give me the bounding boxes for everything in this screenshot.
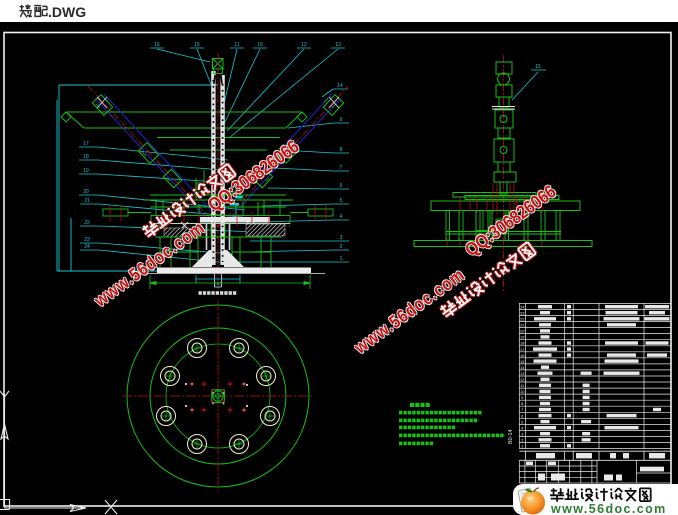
svg-text:17: 17	[520, 347, 525, 352]
svg-text:24: 24	[520, 304, 525, 309]
svg-text:23: 23	[520, 310, 525, 315]
svg-text:20: 20	[520, 329, 525, 334]
svg-text:16: 16	[154, 42, 160, 48]
svg-text:9: 9	[521, 395, 524, 400]
svg-text:6: 6	[340, 183, 343, 189]
svg-text:22: 22	[520, 317, 525, 322]
svg-text:2: 2	[521, 438, 524, 443]
svg-text:3: 3	[340, 235, 343, 241]
svg-text:8: 8	[521, 401, 524, 406]
svg-text:7: 7	[340, 165, 343, 171]
svg-text:18: 18	[83, 154, 89, 160]
svg-text:19: 19	[520, 335, 525, 340]
svg-text:3: 3	[521, 431, 524, 436]
svg-text:23: 23	[84, 237, 90, 243]
svg-text:7: 7	[521, 407, 524, 412]
svg-text:5: 5	[340, 198, 343, 204]
svg-text:420: 420	[214, 281, 222, 286]
svg-text:21: 21	[84, 198, 90, 204]
svg-text:1: 1	[521, 444, 524, 449]
svg-text:9: 9	[340, 117, 343, 123]
svg-text:24: 24	[84, 244, 90, 250]
svg-text:15: 15	[520, 359, 525, 364]
svg-text:B0-14: B0-14	[508, 429, 514, 444]
svg-text:4: 4	[521, 425, 524, 430]
svg-text:11: 11	[234, 42, 239, 48]
svg-text:21: 21	[520, 323, 525, 328]
svg-text:8: 8	[340, 147, 343, 153]
svg-text:5: 5	[521, 419, 524, 424]
svg-text:14: 14	[337, 83, 343, 89]
svg-text:12: 12	[520, 377, 525, 382]
svg-text:22: 22	[84, 220, 90, 226]
svg-text:12: 12	[301, 42, 307, 48]
svg-text:10: 10	[257, 42, 263, 48]
svg-text:18: 18	[520, 341, 525, 346]
svg-text:17: 17	[83, 141, 89, 147]
svg-text:14: 14	[520, 365, 525, 370]
svg-text:13: 13	[335, 42, 341, 48]
svg-text:13: 13	[520, 371, 525, 376]
svg-text:16: 16	[520, 353, 525, 358]
svg-text:19: 19	[83, 168, 89, 174]
svg-text:6: 6	[521, 413, 524, 418]
svg-text:15: 15	[194, 42, 200, 48]
svg-text:4: 4	[340, 214, 343, 220]
svg-text:20: 20	[83, 189, 89, 195]
svg-text:1: 1	[340, 256, 343, 262]
svg-text:10: 10	[520, 389, 525, 394]
svg-text:11: 11	[520, 383, 525, 388]
svg-text:15: 15	[535, 64, 541, 70]
svg-text:2: 2	[340, 244, 343, 250]
